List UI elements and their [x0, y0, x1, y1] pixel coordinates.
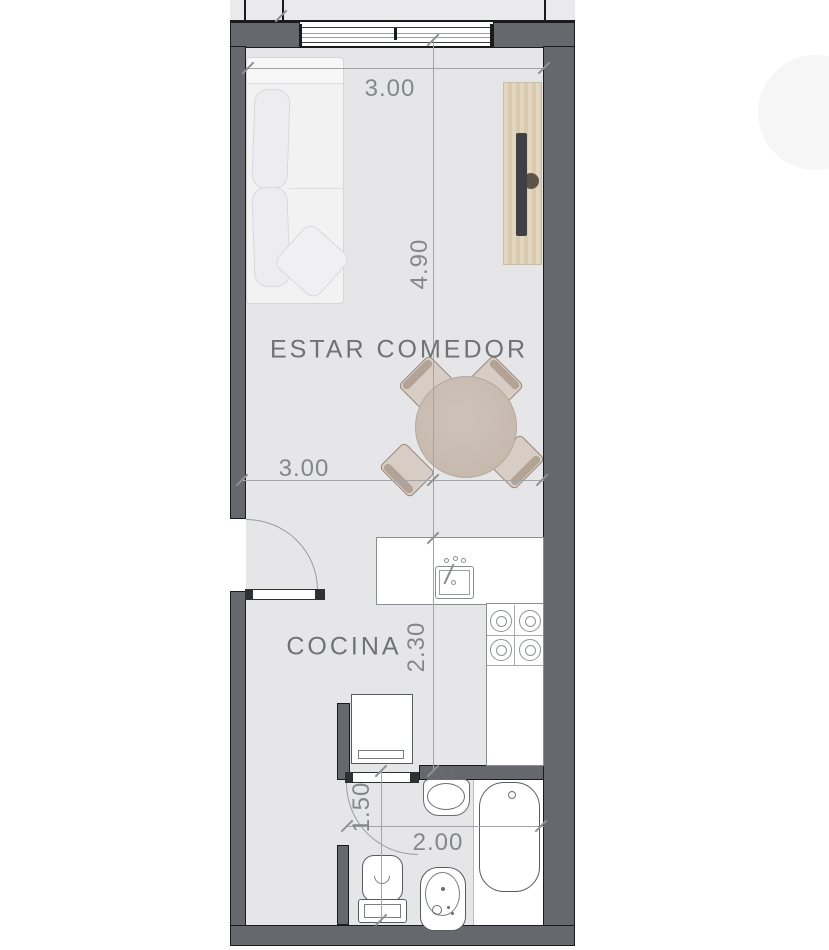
door-jamb [246, 590, 253, 599]
washbasin [423, 779, 470, 816]
stove-burner [519, 639, 541, 661]
tv [516, 133, 527, 236]
washbasin-tap-hole [440, 770, 444, 774]
bidet-bowl [425, 872, 460, 916]
neighbor-unit-strip [230, 0, 575, 22]
sofa [246, 57, 344, 304]
dim-living-height: 4.90 [406, 239, 434, 290]
dim-kitchen-depth: 2.30 [403, 622, 431, 673]
wall-top-right [493, 22, 575, 48]
bathtub-drain [508, 791, 516, 799]
faucet-hole [453, 556, 458, 561]
door-jamb [315, 590, 324, 599]
stove-grid-line [487, 665, 543, 666]
dim-bath-height: 1.50 [348, 782, 376, 833]
refrigerator-handle [358, 750, 404, 759]
wall-left-lower [230, 591, 246, 927]
stove-burner [490, 610, 512, 632]
living-dining-label: ESTAR COMEDOR [270, 336, 528, 365]
bidet-tap-dot [451, 912, 454, 915]
watermark-circle [758, 55, 829, 170]
wall-top-left [230, 22, 300, 48]
floor-plan: 3.00 4.90 3.00 2.30 1.50 2.00 ESTAR COME… [0, 0, 829, 950]
dimension-line [248, 68, 544, 69]
dining-table [415, 376, 517, 478]
dimension-line [381, 770, 382, 922]
window-frame-line [302, 42, 490, 43]
sofa-seam [289, 188, 344, 189]
bidet-tap-dot [447, 906, 450, 909]
faucet-hole [444, 558, 449, 563]
stove-burner [490, 639, 512, 661]
sink-drain [451, 580, 456, 585]
bathtub [479, 782, 540, 892]
neighbor-partition-line [544, 0, 546, 22]
bidet [420, 867, 466, 931]
wall-bathroom-left-stub [337, 845, 349, 925]
bidet-tap [432, 905, 442, 915]
faucet-hole [461, 558, 466, 563]
toilet-bowl-arc [371, 865, 394, 888]
refrigerator [351, 694, 413, 764]
sofa-armrest [247, 58, 343, 84]
dim-living-width: 3.00 [279, 455, 330, 483]
window-mullion [394, 28, 397, 40]
window [299, 24, 493, 48]
entry-door [245, 589, 325, 600]
neighbor-partition-line [244, 0, 246, 22]
wall-left-upper [230, 46, 246, 519]
dim-bath-width: 2.00 [413, 829, 464, 857]
toilet [362, 855, 403, 902]
wall-kitchen-stub [337, 703, 350, 780]
washbasin-bowl [427, 783, 465, 810]
dimension-line [433, 38, 434, 772]
dim-top-width: 3.00 [365, 75, 416, 103]
door-jamb [410, 773, 418, 782]
wall-bottom [230, 925, 575, 946]
washbasin-tap-hole [450, 771, 454, 775]
door-jamb [346, 773, 353, 782]
bidet-drain-dot [441, 887, 445, 891]
wall-right [543, 46, 575, 927]
kitchen-label: COCINA [286, 633, 401, 662]
stove-grid-line [487, 635, 543, 636]
sofa-back-cushion [251, 88, 290, 189]
stove-burner [519, 610, 541, 632]
tv-unit [503, 82, 542, 265]
